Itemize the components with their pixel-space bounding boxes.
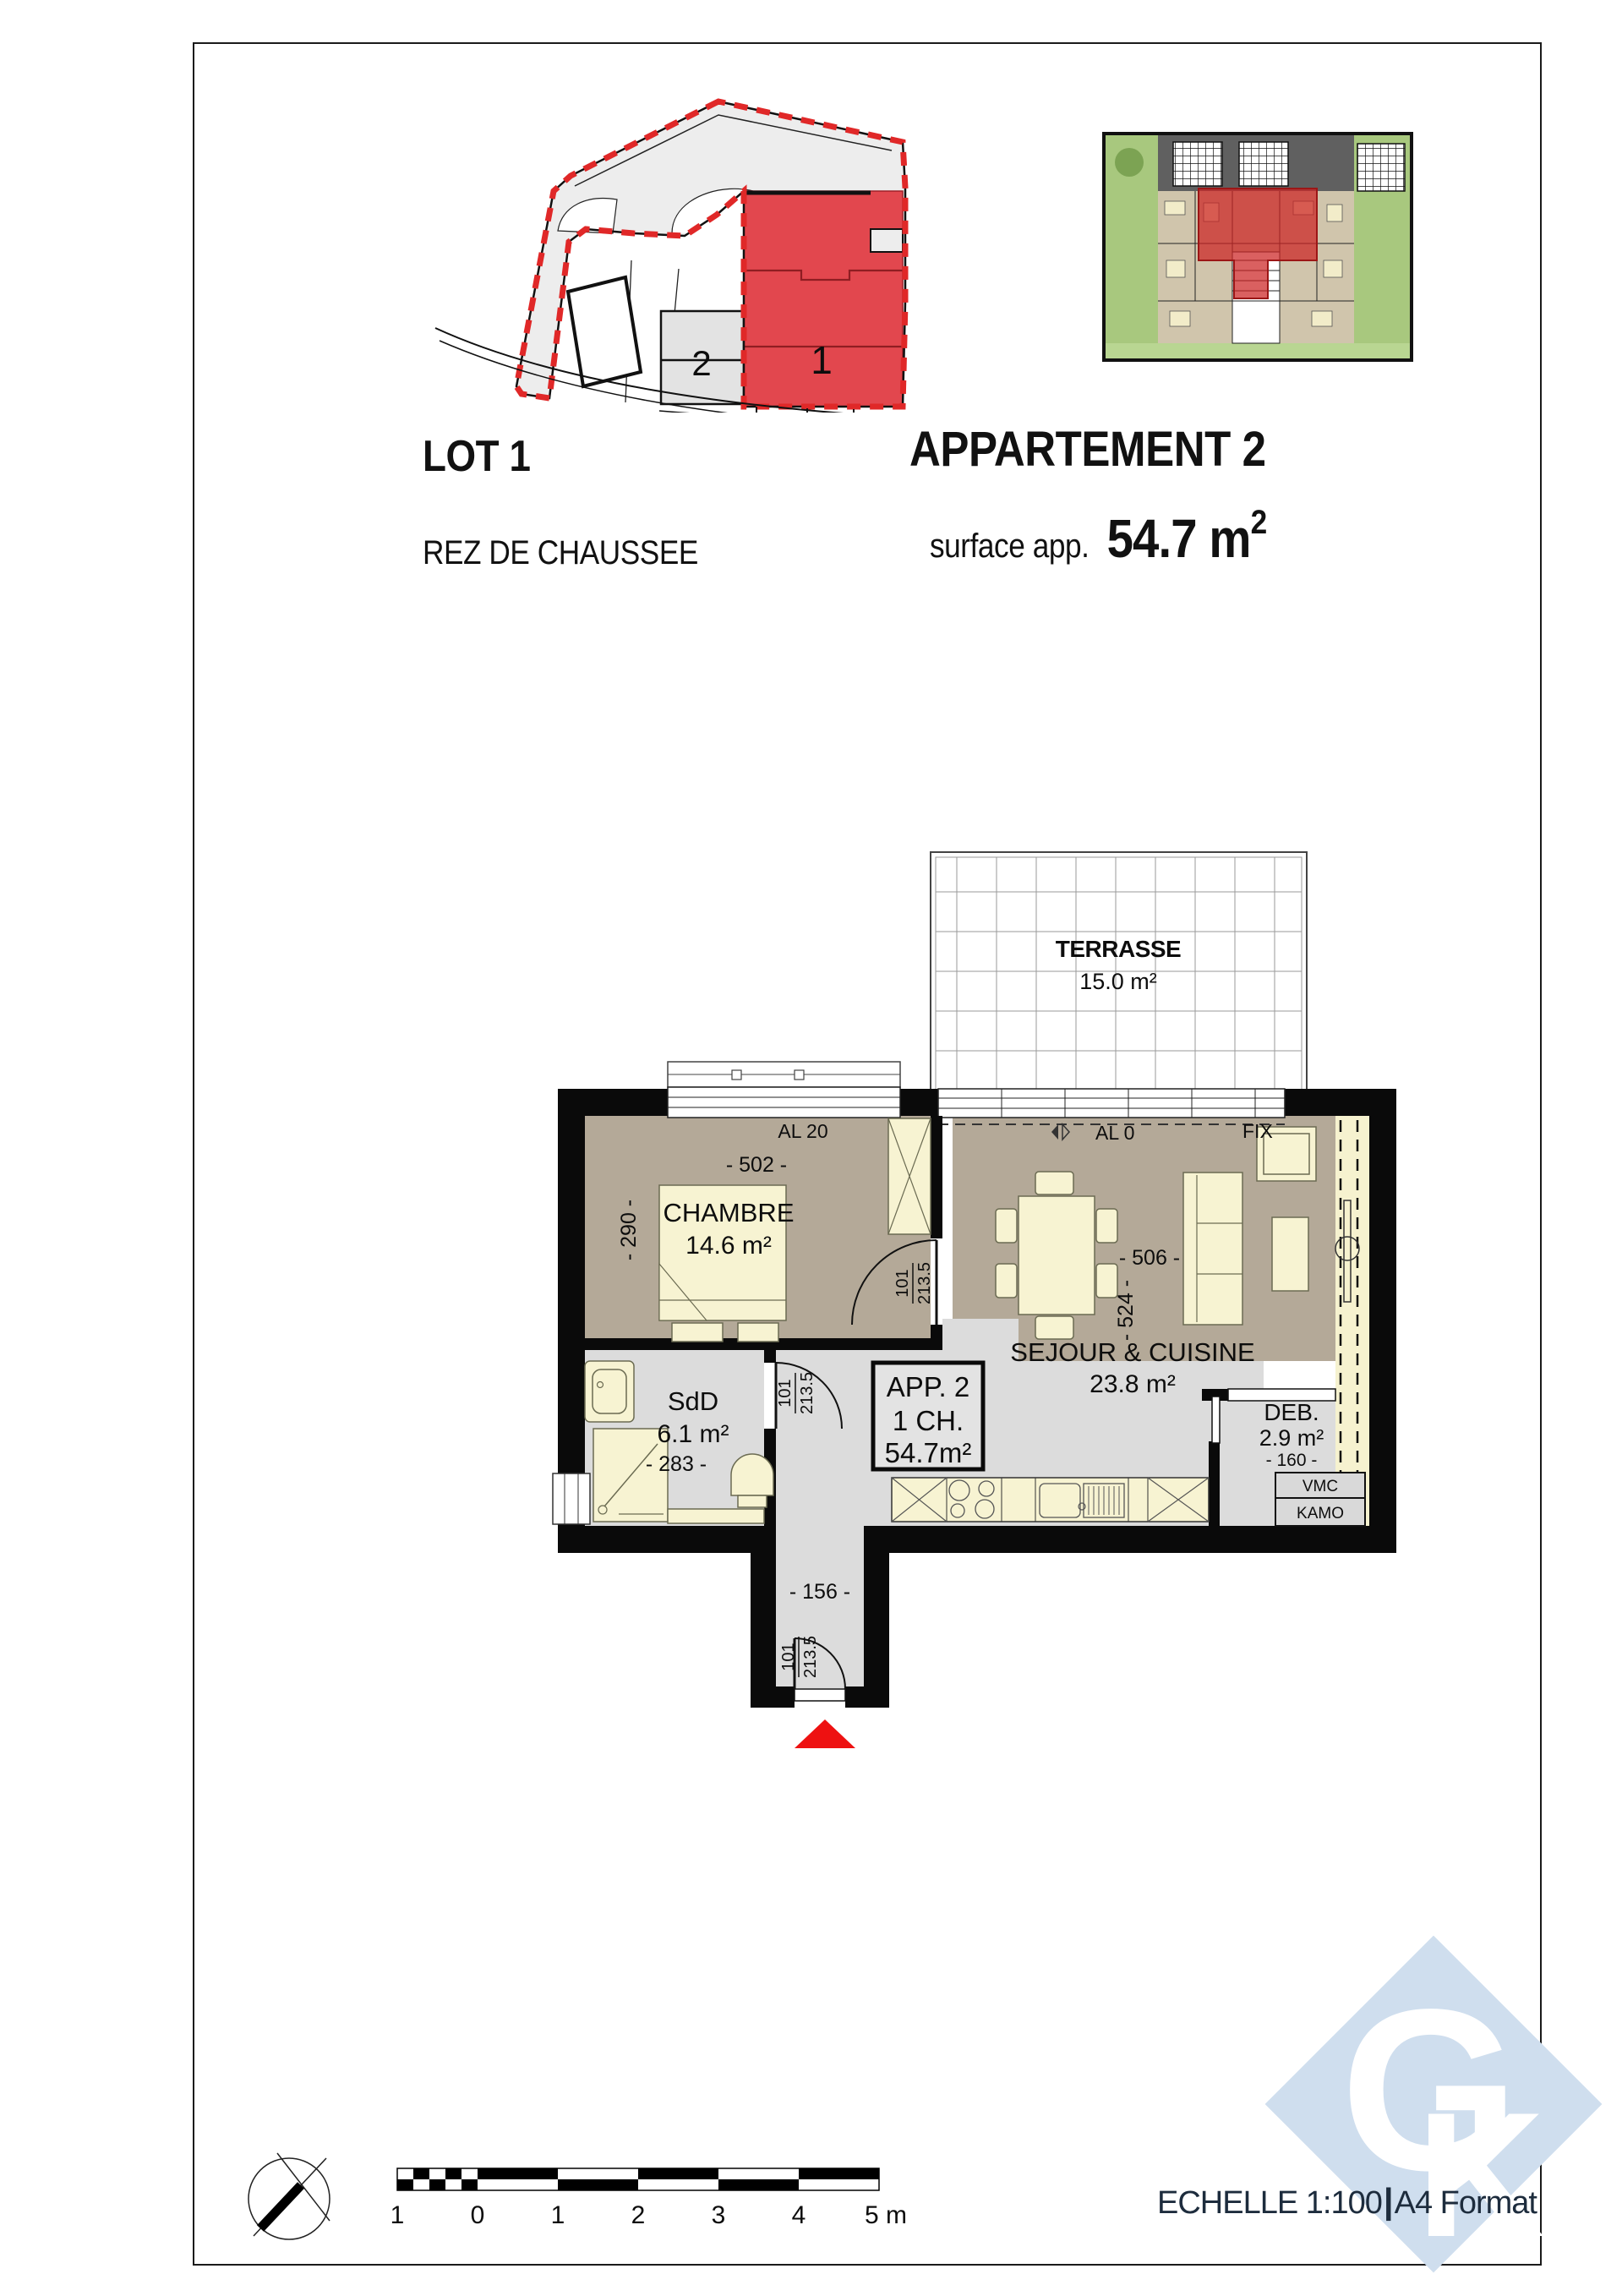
green-bottom [1106, 343, 1410, 358]
scale-note: ECHELLE 1:100|A4 Format [1133, 2181, 1537, 2222]
separator: | [1382, 2181, 1395, 2221]
entrance-arrow [795, 1719, 855, 1748]
vmc-label: VMC [1303, 1478, 1338, 1495]
surface-sup: 2 [1251, 504, 1267, 541]
sejour-window-left-label: AL 0 [1095, 1122, 1134, 1144]
apartment-info-box: APP. 2 1 CH. 54.7m² [873, 1363, 983, 1469]
deb-area: 2.9 m² [1259, 1425, 1324, 1451]
app-box-line1: APP. 2 [887, 1371, 969, 1402]
deb-door-leaf [1212, 1397, 1220, 1443]
terrasse: TERRASSE 15.0 m² [931, 852, 1307, 1103]
hall-width-dim: - 156 - [789, 1580, 850, 1604]
svg-text:101: 101 [779, 1643, 798, 1670]
surface-label: surface app. [930, 528, 1089, 565]
app-box-line3: 54.7m² [885, 1437, 972, 1468]
sdd-window [553, 1473, 590, 1524]
surface-value: 54.7 m [1107, 508, 1251, 569]
neighbour-building [568, 277, 641, 386]
svg-text:101: 101 [893, 1269, 912, 1297]
chambre-label: CHAMBRE [663, 1198, 794, 1227]
chambre-width-dim: - 502 - [726, 1153, 787, 1177]
site-building-2: 2 [661, 311, 744, 404]
lot-subtitle: REZ DE CHAUSSEE [423, 534, 698, 572]
scale-tick: 2 [631, 2201, 646, 2229]
scale-tick: 1 [390, 2201, 405, 2229]
gk-logo-letter-k: K [1417, 2086, 1545, 2264]
sejour-width-dim: - 506 - [1119, 1246, 1180, 1270]
app-box-line2: 1 CH. [893, 1405, 964, 1436]
svg-text:213.5: 213.5 [801, 1636, 820, 1678]
kamo-label: KAMO [1297, 1505, 1344, 1522]
scale-bar: 1 0 1 2 3 4 5 m [372, 2147, 921, 2240]
apartment-floor-plan: TERRASSE 15.0 m² [541, 837, 1437, 1775]
scale-text: ECHELLE 1:100 [1157, 2185, 1382, 2221]
scale-tick: 4 [792, 2201, 806, 2229]
site-building-1: 1 [744, 191, 903, 407]
strip-door-leaf [1344, 1200, 1351, 1302]
kitchen-counter [892, 1478, 1209, 1522]
sejour-area: 23.8 m² [1090, 1370, 1176, 1398]
terrace-hatch [1173, 142, 1222, 186]
chambre-depth-dim: - 290 - [617, 1200, 641, 1260]
chambre-area: 14.6 m² [685, 1232, 772, 1260]
svg-text:213.5: 213.5 [798, 1372, 816, 1414]
apartment-title: APPARTEMENT 2 [909, 421, 1266, 478]
site-building-2-label: 2 [691, 343, 711, 383]
sejour-label: SEJOUR & CUISINE [1010, 1337, 1254, 1367]
scale-tick: 0 [471, 2201, 485, 2229]
sdd-width-dim: - 283 - [646, 1452, 707, 1476]
floorplan-sheet: { "header": { "lot_title": "LOT 1", "lot… [0, 0, 1622, 2296]
tech-boxes: VMC KAMO [1275, 1473, 1365, 1526]
sejour-window-right-label: FIX [1242, 1120, 1273, 1142]
terrace-hatch [1357, 144, 1405, 191]
chambre-window [668, 1062, 900, 1118]
lot-title: LOT 1 [423, 431, 530, 482]
site-plan: 2 1 [423, 49, 980, 413]
sdd-label: SdD [668, 1386, 718, 1416]
scale-tick: 1 [551, 2201, 565, 2229]
format-text: A4 Format [1395, 2185, 1537, 2221]
north-compass-icon [228, 2143, 355, 2270]
site-building-1-label: 1 [811, 338, 833, 382]
building-key-plan [1099, 125, 1420, 372]
svg-text:213.5: 213.5 [915, 1262, 934, 1304]
scale-tick: 3 [712, 2201, 726, 2229]
deb-label: DEB. [1264, 1399, 1319, 1425]
chambre-window-label: AL 20 [778, 1120, 827, 1142]
terrasse-label: TERRASSE [1056, 936, 1181, 962]
svg-text:101: 101 [776, 1379, 795, 1407]
scale-tick: 5 m [865, 2201, 907, 2229]
sdd-area: 6.1 m² [657, 1420, 729, 1448]
deb-width-dim: - 160 - [1266, 1451, 1318, 1470]
terrace-hatch [1239, 142, 1288, 186]
sejour-depth-dim: - 524 - [1114, 1280, 1138, 1341]
terrasse-area: 15.0 m² [1079, 969, 1157, 994]
surface-line: surface app.54.7 m2 [930, 504, 1267, 570]
